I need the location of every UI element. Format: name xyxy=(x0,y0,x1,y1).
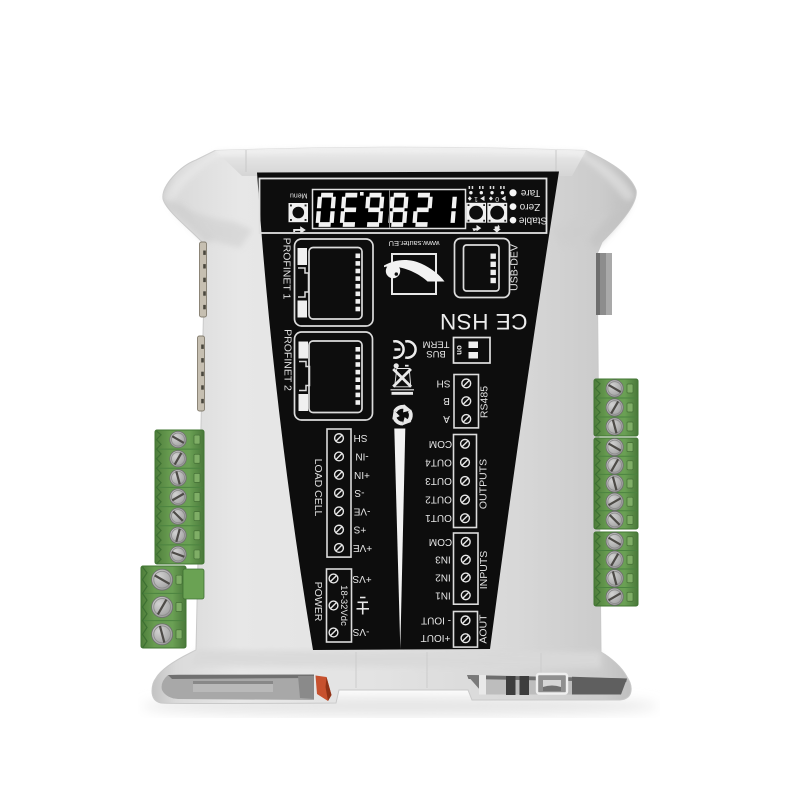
svg-text:OUT4: OUT4 xyxy=(425,456,452,467)
svg-text:- IOUT: - IOUT xyxy=(421,614,451,625)
svg-text:Menu: Menu xyxy=(290,192,308,199)
svg-text:PROFINET 2: PROFINET 2 xyxy=(282,329,294,391)
svg-text:TERM: TERM xyxy=(422,339,449,350)
svg-text:OUT3: OUT3 xyxy=(425,475,452,486)
svg-text:PROFINET 1: PROFINET 1 xyxy=(281,238,293,300)
svg-text:SH: SH xyxy=(354,432,368,443)
svg-text:IN2: IN2 xyxy=(435,572,451,583)
svg-text:0: 0 xyxy=(495,195,499,202)
svg-text:+VS: +VS xyxy=(352,573,372,584)
svg-text:A: A xyxy=(443,413,450,424)
svg-text:CE HSN: CE HSN xyxy=(439,309,527,334)
svg-text:AOUT: AOUT xyxy=(478,614,490,644)
svg-text:SH: SH xyxy=(437,377,451,388)
svg-text:POWER: POWER xyxy=(312,582,324,622)
svg-text:LOAD CELL: LOAD CELL xyxy=(312,459,324,517)
svg-text:RS485: RS485 xyxy=(479,386,491,418)
svg-text:Stable: Stable xyxy=(518,215,547,226)
svg-text:-IN: -IN xyxy=(355,450,368,461)
svg-text:-VE: -VE xyxy=(353,505,370,516)
svg-text:on: on xyxy=(455,345,464,355)
svg-text:INPUTS: INPUTS xyxy=(478,551,490,590)
svg-text:+S: +S xyxy=(353,524,366,535)
svg-text:-S: -S xyxy=(354,487,364,498)
svg-text:+VE: +VE xyxy=(353,542,373,553)
svg-text:-VS: -VS xyxy=(352,626,369,637)
svg-text:B: B xyxy=(443,395,450,406)
svg-text:OUTPUTS: OUTPUTS xyxy=(478,459,490,509)
svg-text:+IOUT: +IOUT xyxy=(421,632,451,643)
svg-text:OUT2: OUT2 xyxy=(425,494,452,505)
svg-text:Tare: Tare xyxy=(520,187,540,198)
svg-text:1: 1 xyxy=(474,195,478,202)
svg-text:IN1: IN1 xyxy=(435,589,451,600)
svg-text:www.sauter.EU: www.sauter.EU xyxy=(389,239,441,248)
svg-text:COM: COM xyxy=(429,536,452,547)
svg-text:USB-DEV: USB-DEV xyxy=(509,244,521,291)
svg-text:BUS: BUS xyxy=(426,348,446,359)
svg-text:+IN: +IN xyxy=(354,469,370,480)
svg-text:IN3: IN3 xyxy=(435,554,451,565)
svg-text:Zero: Zero xyxy=(519,201,540,212)
svg-text:18-32Vdc: 18-32Vdc xyxy=(338,585,349,626)
svg-text:COM: COM xyxy=(429,438,452,449)
svg-text:OUT1: OUT1 xyxy=(425,512,452,523)
